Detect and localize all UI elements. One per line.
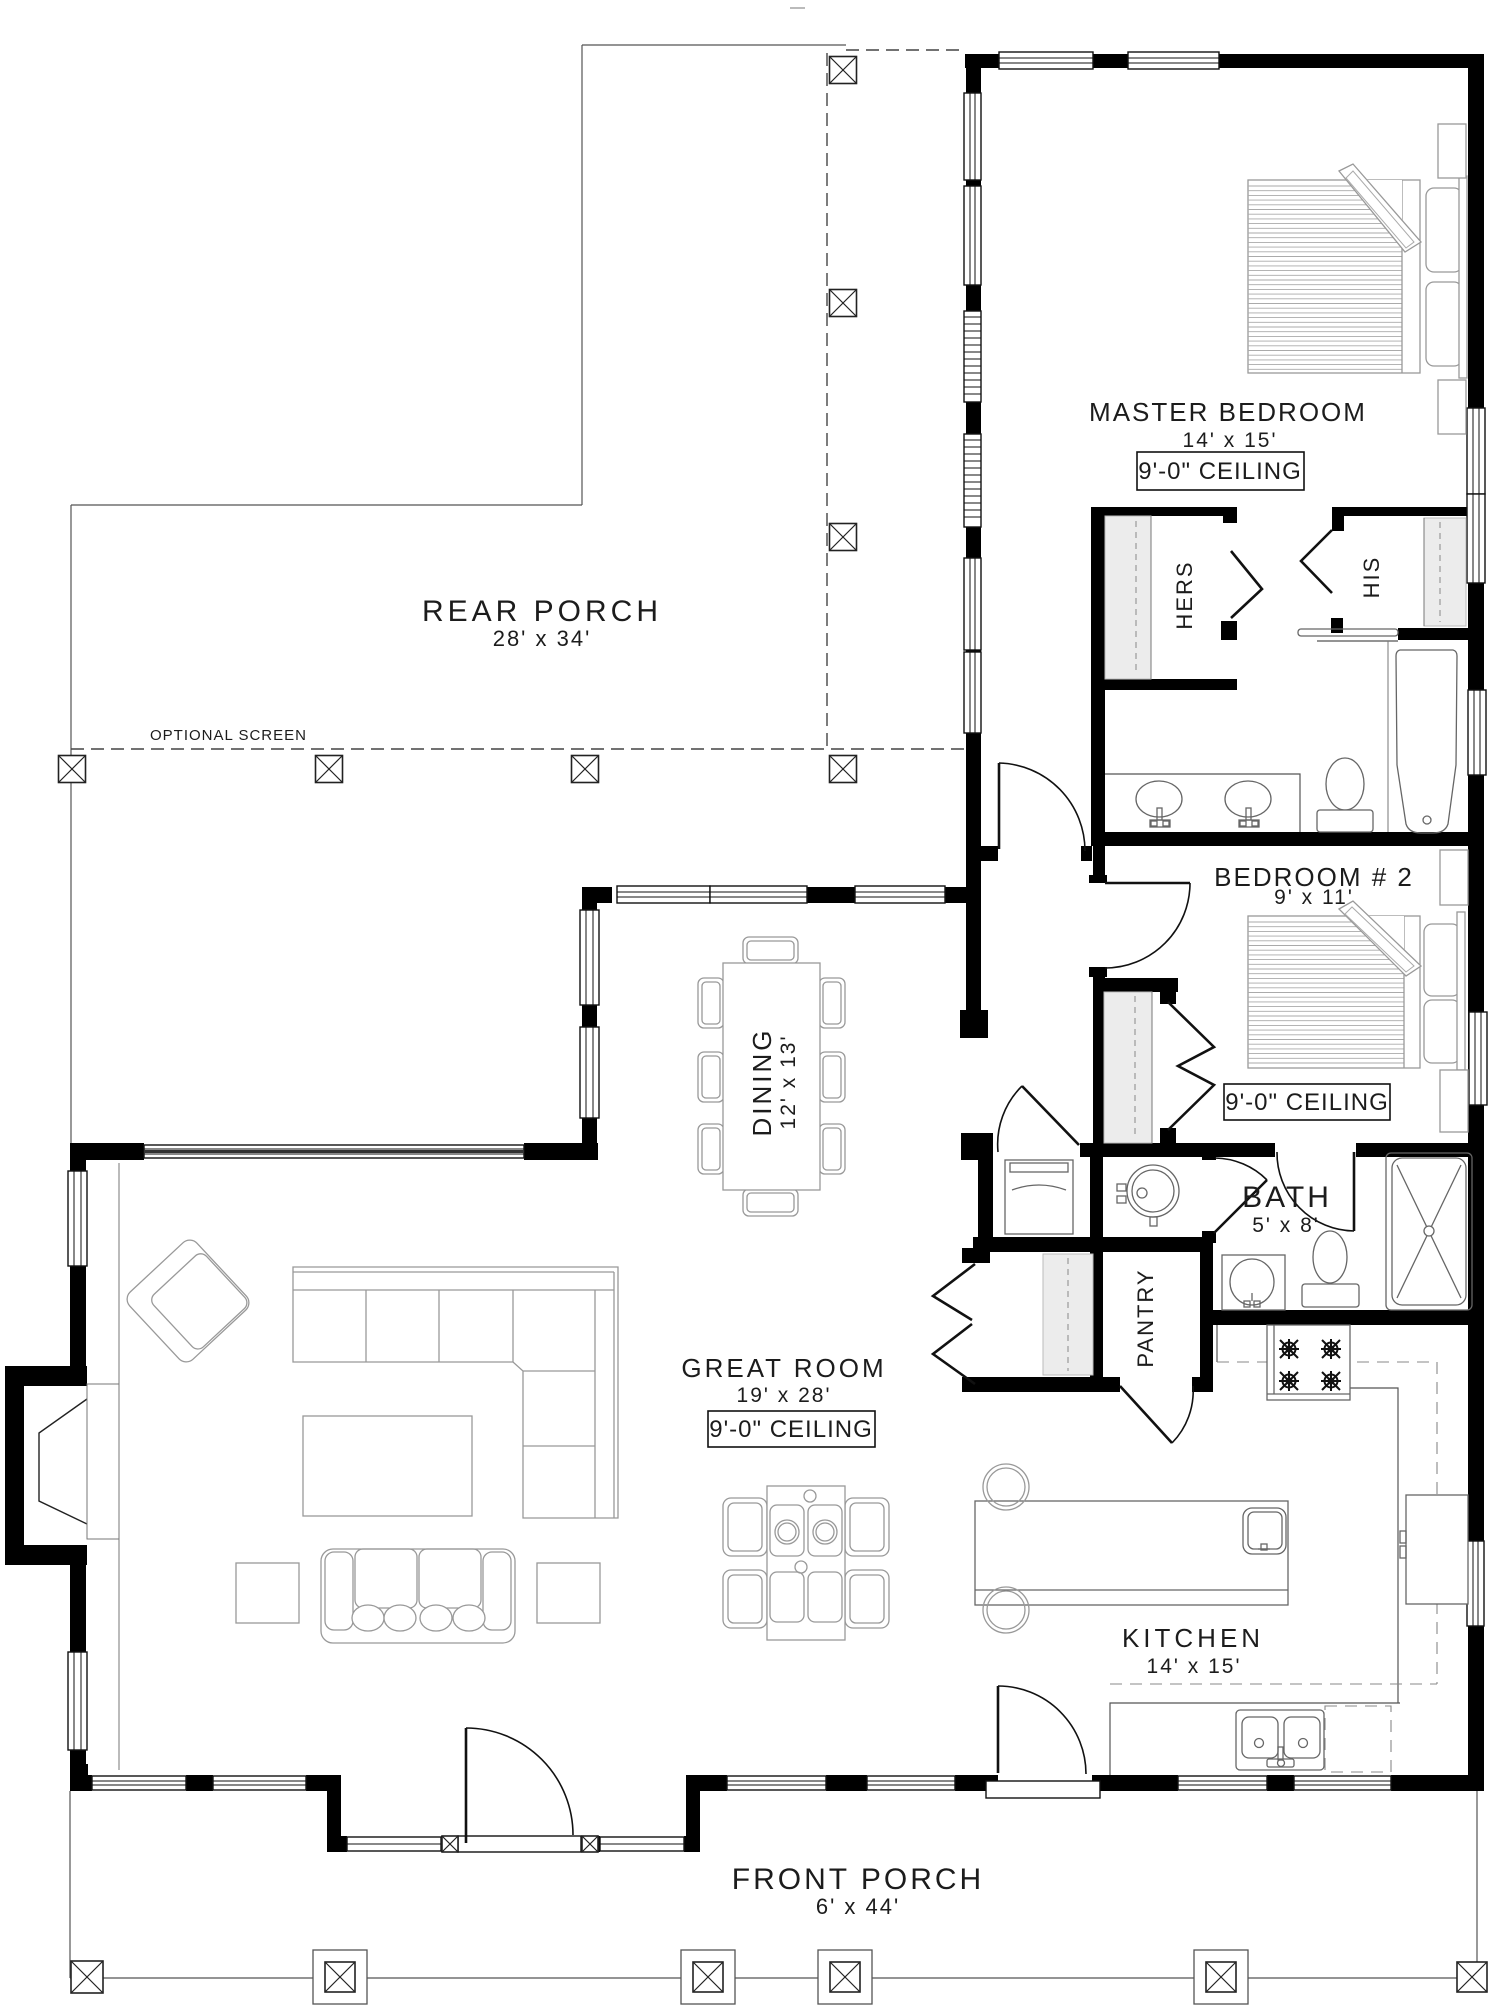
svg-text:GREAT ROOM: GREAT ROOM: [681, 1353, 886, 1383]
svg-text:HERS: HERS: [1172, 560, 1197, 629]
svg-text:PANTRY: PANTRY: [1133, 1268, 1158, 1367]
svg-text:6' x 44': 6' x 44': [816, 1894, 900, 1919]
svg-text:28' x 34': 28' x 34': [493, 626, 592, 651]
svg-text:9'-0" CEILING: 9'-0" CEILING: [709, 1416, 872, 1443]
svg-text:14' x 15': 14' x 15': [1147, 1655, 1242, 1678]
svg-text:BATH: BATH: [1242, 1181, 1332, 1214]
svg-text:FRONT PORCH: FRONT PORCH: [732, 1863, 984, 1896]
svg-text:MASTER BEDROOM: MASTER BEDROOM: [1089, 397, 1367, 427]
svg-text:REAR PORCH: REAR PORCH: [422, 595, 662, 628]
svg-text:9'-0" CEILING: 9'-0" CEILING: [1225, 1089, 1388, 1116]
svg-text:9' x 11': 9' x 11': [1274, 886, 1354, 909]
svg-text:OPTIONAL SCREEN: OPTIONAL SCREEN: [150, 727, 307, 744]
svg-text:HIS: HIS: [1359, 556, 1384, 599]
svg-text:5' x 8': 5' x 8': [1252, 1214, 1320, 1237]
svg-text:9'-0" CEILING: 9'-0" CEILING: [1138, 458, 1301, 485]
svg-text:12' x 13': 12' x 13': [777, 1035, 800, 1130]
svg-text:14' x 15': 14' x 15': [1183, 429, 1278, 452]
svg-text:19' x 28': 19' x 28': [737, 1384, 832, 1407]
svg-text:DINING: DINING: [747, 1028, 777, 1137]
svg-text:KITCHEN: KITCHEN: [1122, 1623, 1264, 1653]
